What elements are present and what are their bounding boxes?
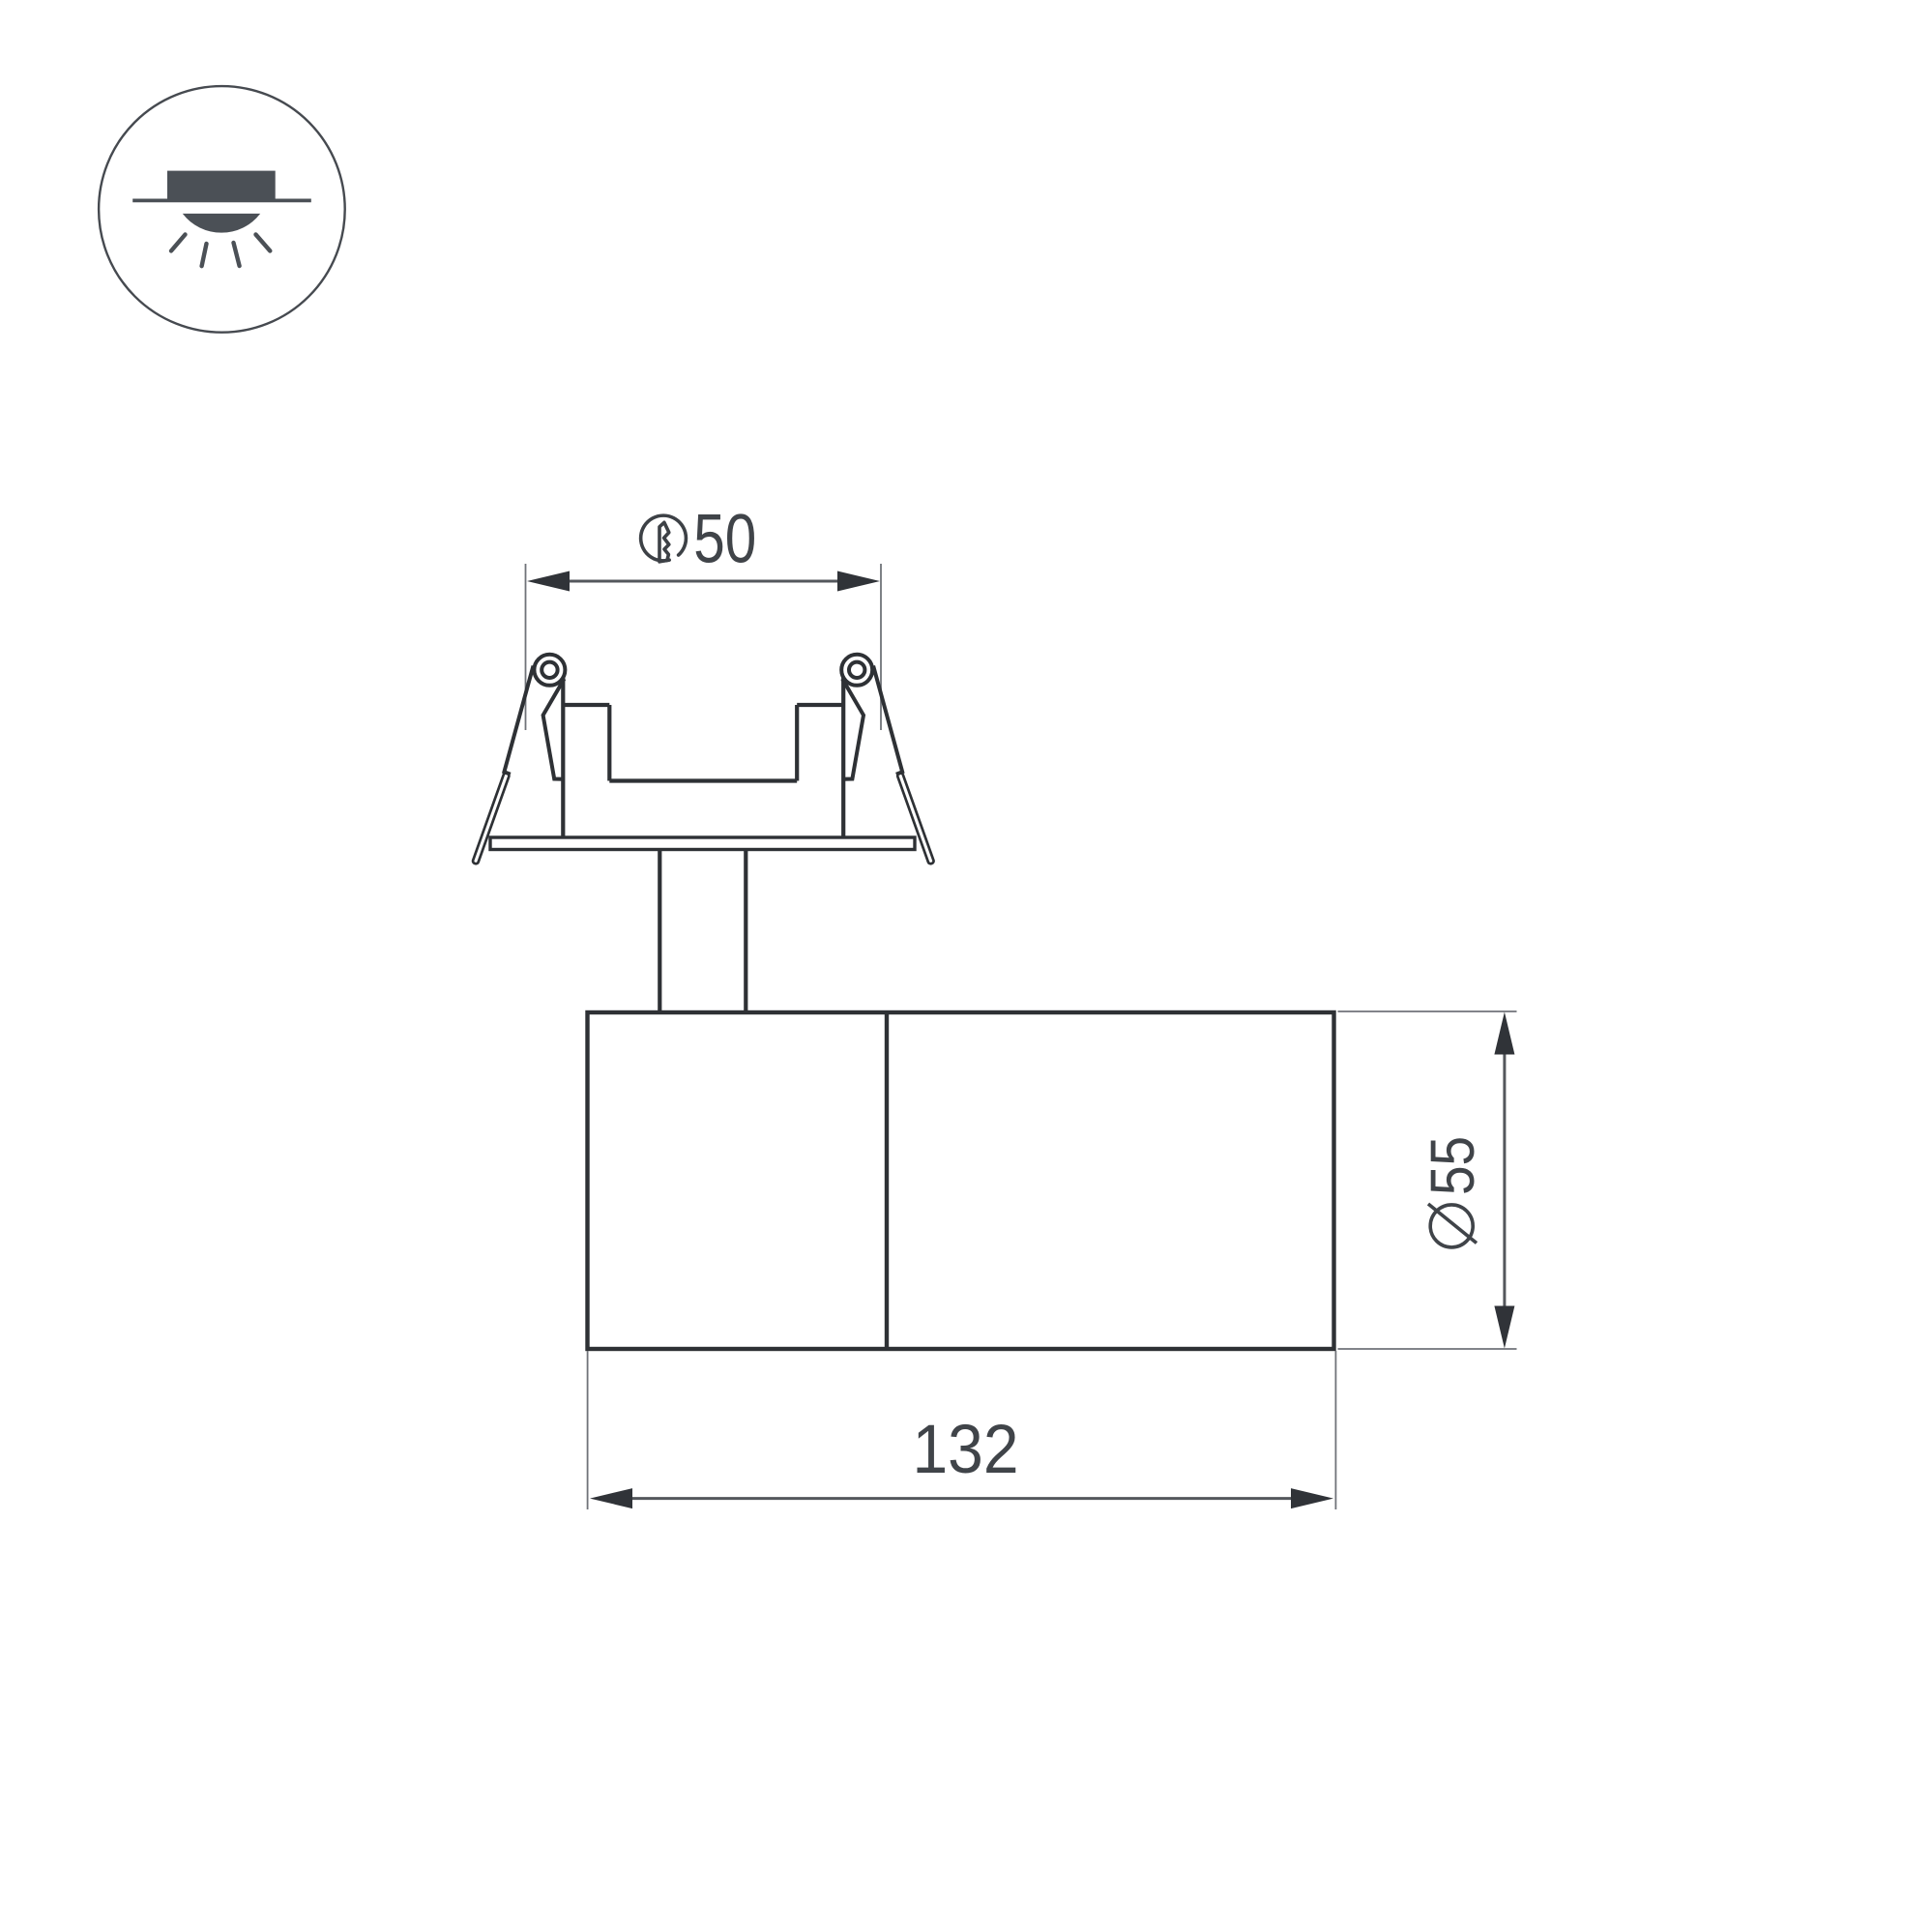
svg-text:55: 55 [1418,1136,1487,1195]
svg-text:132: 132 [913,1412,1019,1488]
svg-text:50: 50 [693,502,756,578]
